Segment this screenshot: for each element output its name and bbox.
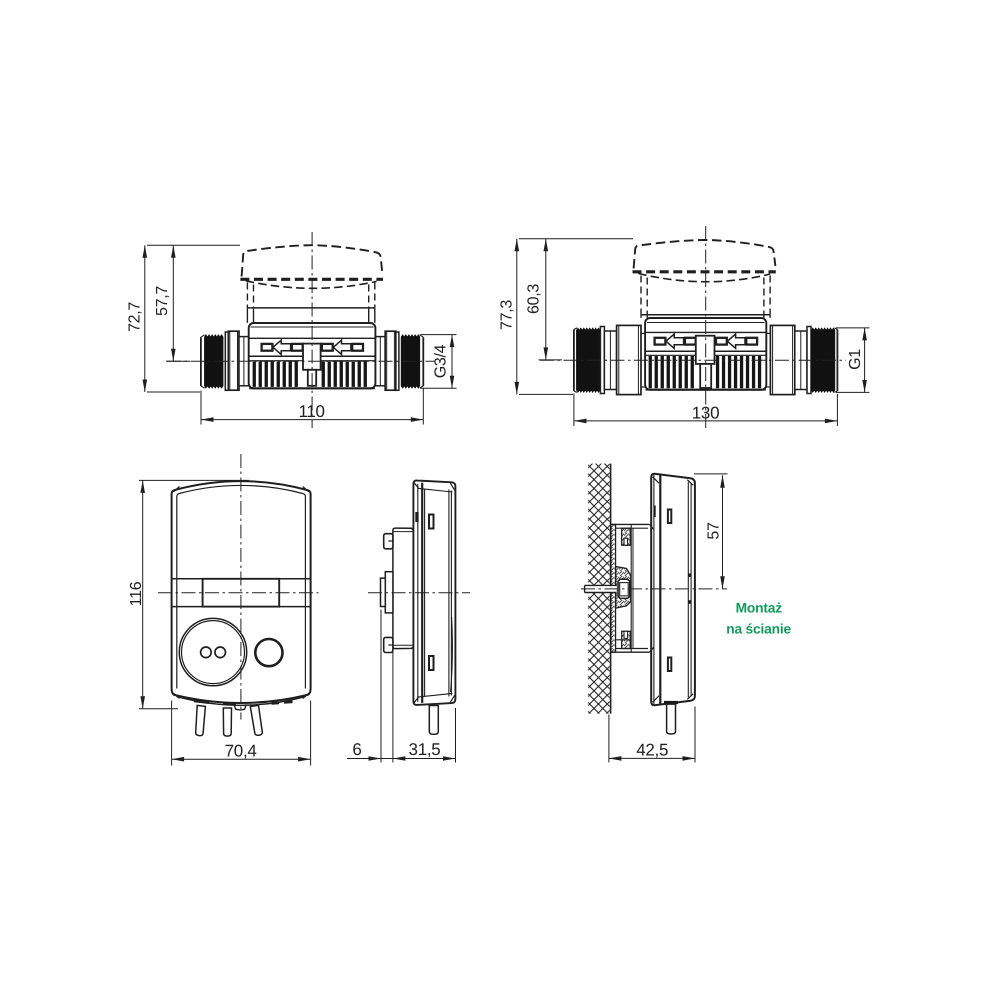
svg-text:57,7: 57,7 [154, 286, 171, 316]
svg-text:42,5: 42,5 [636, 740, 668, 759]
svg-text:6: 6 [352, 740, 361, 759]
svg-text:110: 110 [298, 402, 324, 421]
svg-text:G1: G1 [847, 349, 864, 370]
svg-text:116: 116 [128, 581, 145, 606]
svg-text:57: 57 [706, 522, 723, 540]
svg-text:31,5: 31,5 [409, 740, 441, 759]
svg-text:na ścianie: na ścianie [726, 622, 791, 637]
svg-text:Montaż: Montaż [736, 600, 783, 615]
svg-text:130: 130 [692, 403, 719, 422]
svg-text:G3/4: G3/4 [433, 344, 450, 378]
svg-text:70,4: 70,4 [225, 742, 257, 761]
svg-text:77,3: 77,3 [499, 300, 516, 330]
svg-text:60,3: 60,3 [526, 284, 543, 314]
svg-text:72,7: 72,7 [127, 302, 144, 332]
